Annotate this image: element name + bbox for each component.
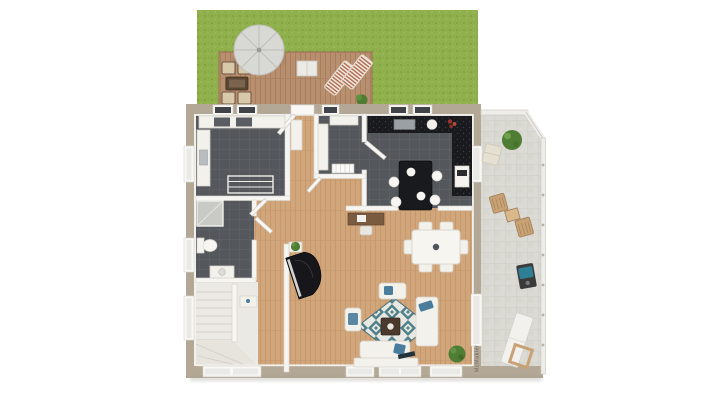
wall-utility-bottom bbox=[196, 196, 290, 201]
stool bbox=[389, 177, 399, 187]
drop-shadow bbox=[190, 377, 542, 381]
radiator bbox=[332, 164, 354, 173]
loveseat-top bbox=[379, 283, 406, 299]
living-plant bbox=[449, 346, 466, 363]
parasol bbox=[234, 25, 284, 75]
wall-bathroom-bottom bbox=[196, 278, 256, 283]
window-kitchen-2 bbox=[413, 105, 432, 115]
wall-kitchen-bottom-right bbox=[438, 206, 472, 211]
hall-dresser bbox=[240, 296, 257, 307]
armchair-left bbox=[345, 308, 361, 331]
chaise-right bbox=[416, 297, 438, 346]
patio-plant bbox=[502, 130, 522, 150]
plant-stand bbox=[289, 242, 302, 252]
wall-watermark: McMakler bbox=[475, 345, 481, 372]
window-left-2 bbox=[184, 238, 194, 272]
stool bbox=[432, 171, 442, 181]
toilet bbox=[197, 238, 217, 253]
window-left-1 bbox=[184, 146, 194, 182]
wall-kitchen-bottom-left bbox=[346, 206, 398, 211]
bathroom-sink bbox=[210, 266, 234, 278]
wall-bathroom-right-lower bbox=[252, 240, 257, 280]
patio-french-door-living bbox=[471, 294, 482, 346]
wall-kitchen-left-upper bbox=[362, 114, 367, 142]
kitchen-sink bbox=[394, 120, 415, 130]
window-bottom-2 bbox=[346, 366, 374, 377]
stool bbox=[391, 197, 401, 207]
floorplan-render: McMakler bbox=[0, 0, 712, 400]
window-bottom-3 bbox=[379, 366, 421, 377]
window-kitchen-1 bbox=[389, 105, 408, 115]
deck-side-table bbox=[297, 61, 317, 76]
coffee-table bbox=[381, 318, 400, 335]
window-closet bbox=[322, 105, 339, 115]
stool bbox=[430, 195, 440, 205]
wall-closet-bottom bbox=[314, 174, 366, 179]
entry-wardrobe bbox=[291, 120, 302, 150]
desk-chair bbox=[360, 226, 372, 235]
plate bbox=[427, 120, 437, 130]
window-bottom-4 bbox=[430, 366, 462, 377]
floorplan-canvas: McMakler bbox=[0, 0, 712, 400]
oven bbox=[455, 166, 469, 187]
centerpiece bbox=[433, 244, 439, 250]
window-left-3 bbox=[184, 296, 194, 340]
window-utility-2 bbox=[237, 105, 257, 115]
window-bottom-1 bbox=[203, 366, 261, 377]
window-utility-1 bbox=[213, 105, 233, 115]
patio-door-kitchen bbox=[471, 146, 482, 182]
